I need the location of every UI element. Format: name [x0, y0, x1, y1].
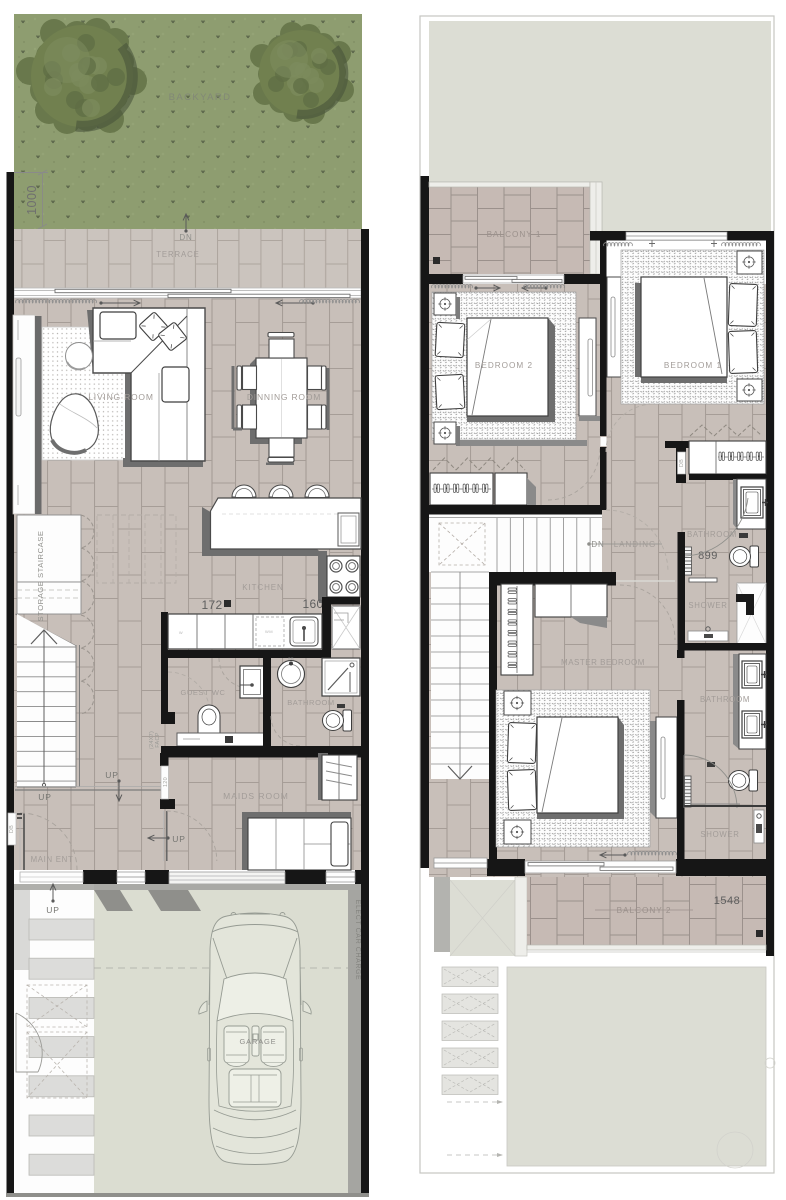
svg-text:WM: WM: [265, 629, 273, 634]
svg-text:BATHROOM: BATHROOM: [700, 695, 750, 704]
svg-text:GARAGE: GARAGE: [240, 1037, 277, 1046]
svg-text:GUEST WC: GUEST WC: [180, 688, 225, 697]
svg-text:SB: SB: [288, 656, 294, 661]
svg-text:LIVING ROOM: LIVING ROOM: [88, 392, 153, 402]
svg-text:DB: DB: [9, 825, 15, 833]
svg-text:STORAGE STAIRCASE: STORAGE STAIRCASE: [36, 531, 45, 622]
svg-text:BATHROOM: BATHROOM: [687, 530, 737, 539]
svg-text:FACP: FACP: [155, 732, 161, 748]
svg-text:172: 172: [202, 598, 223, 612]
svg-text:MAIDS ROOM: MAIDS ROOM: [223, 791, 289, 801]
svg-text:DN: DN: [591, 540, 604, 549]
svg-text:DINNING ROOM: DINNING ROOM: [247, 392, 321, 402]
svg-text:UP: UP: [105, 770, 119, 780]
svg-text:TERRACE: TERRACE: [156, 250, 200, 259]
svg-text:MASTER BEDROOM: MASTER BEDROOM: [561, 658, 645, 667]
svg-text:BEDROOM 1: BEDROOM 1: [664, 361, 722, 370]
svg-text:MAIN ENT: MAIN ENT: [31, 855, 74, 864]
svg-text:BEDROOM 2: BEDROOM 2: [475, 361, 533, 370]
svg-text:SHOWER: SHOWER: [700, 830, 739, 839]
svg-text:UP: UP: [46, 905, 60, 915]
svg-text:BACKYARD: BACKYARD: [169, 92, 232, 103]
svg-text:120: 120: [163, 777, 169, 787]
svg-text:DN: DN: [179, 233, 192, 242]
svg-text:UP: UP: [172, 834, 186, 844]
svg-text:BALCONY 2: BALCONY 2: [617, 906, 672, 915]
svg-text:W: W: [179, 630, 183, 635]
svg-text:UP: UP: [38, 792, 52, 802]
svg-text:ELECT CAR CHARGE: ELECT CAR CHARGE: [354, 900, 361, 981]
svg-text:160: 160: [303, 597, 324, 611]
svg-text:LANDING: LANDING: [614, 540, 657, 549]
svg-text:BATHROOM: BATHROOM: [287, 698, 335, 707]
svg-text:1000: 1000: [25, 185, 39, 215]
svg-text:1548: 1548: [714, 895, 740, 907]
svg-text:KITCHEN: KITCHEN: [242, 583, 283, 592]
svg-text:899: 899: [698, 550, 718, 562]
svg-text:SHOWER: SHOWER: [688, 601, 727, 610]
svg-text:BALCONY 1: BALCONY 1: [487, 230, 542, 239]
svg-text:DB: DB: [679, 459, 685, 467]
